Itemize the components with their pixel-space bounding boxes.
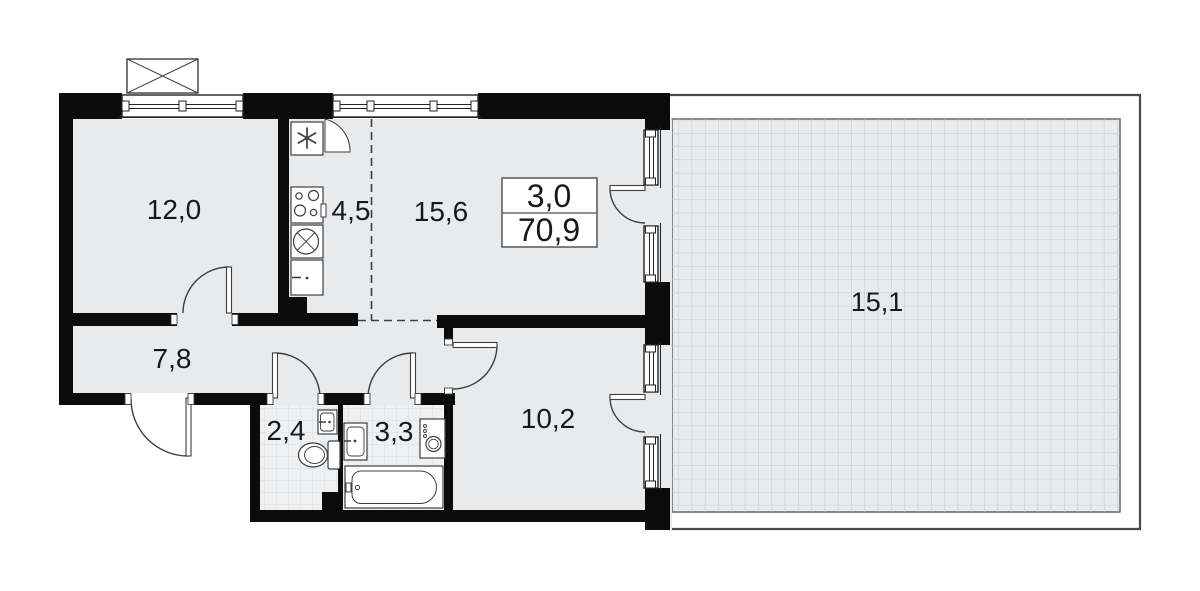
wall-top-mid — [243, 93, 333, 119]
summary-rooms-count: 3,0 — [527, 178, 571, 214]
wall-wc-notch — [322, 492, 343, 510]
wall-hall-top-a — [59, 313, 177, 326]
wall-wc-left — [250, 398, 260, 522]
balcony-cross-icon — [127, 59, 198, 93]
wall-hall-bottom-left — [59, 393, 131, 405]
wall-right-b — [645, 282, 670, 345]
window-living-1 — [644, 127, 661, 188]
door-leaf — [610, 186, 645, 191]
window-room1 — [118, 95, 247, 118]
floor-wc-doorway — [273, 393, 318, 405]
wall-hall-top-b — [232, 313, 358, 326]
wall-left — [59, 93, 73, 405]
window-living-2 — [644, 223, 661, 285]
wall-right-c — [645, 488, 670, 530]
stove-icon — [291, 187, 326, 223]
wall-room-kitchen — [278, 119, 289, 313]
terrace — [668, 95, 1140, 529]
floor-plan: 12,0 4,5 15,6 7,8 2,4 3,3 10,2 15,1 3,0 … — [0, 0, 1200, 591]
label-kitchen-area: 4,5 — [332, 195, 371, 226]
label-terrace-area: 15,1 — [851, 287, 904, 317]
door-leaf — [273, 353, 278, 398]
washbasin-icon — [344, 423, 367, 460]
label-bath-area: 3,3 — [375, 416, 414, 447]
label-hall-area: 7,8 — [153, 343, 192, 374]
label-bedroom-area: 10,2 — [521, 403, 576, 434]
door-leaf — [610, 395, 645, 400]
label-wc-area: 2,4 — [267, 415, 306, 446]
wall-bottom — [250, 510, 670, 522]
label-room1-area: 12,0 — [147, 194, 202, 225]
door-entrance — [131, 398, 191, 456]
bathtub-icon — [345, 466, 443, 508]
floor-plan-page: 12,0 4,5 15,6 7,8 2,4 3,3 10,2 15,1 3,0 … — [0, 0, 1200, 591]
wall-kitchen-stub — [289, 297, 307, 313]
sink-cross-icon — [291, 225, 323, 258]
door-swing-arc — [131, 399, 188, 456]
wall-right-a — [645, 93, 670, 130]
washbasin-icon — [318, 410, 337, 434]
window-kitchen-living — [329, 95, 482, 118]
door-leaf — [453, 343, 497, 348]
summary-box: 3,0 70,9 — [502, 178, 597, 248]
washing-machine-icon — [420, 419, 445, 458]
wall-top-right — [478, 93, 670, 119]
summary-total-area: 70,9 — [518, 212, 580, 248]
door-leaf — [411, 353, 416, 398]
window-bedroom-1 — [644, 342, 661, 395]
door-leaf — [227, 267, 232, 313]
wall-living-bedroom — [437, 315, 645, 328]
floor-bath-doorway — [370, 393, 415, 405]
door-leaf — [186, 398, 191, 456]
wall-bath-top-b — [318, 393, 370, 405]
wall-hall-bottom-right — [188, 393, 260, 405]
label-living-area: 15,6 — [414, 196, 469, 227]
kitchen-cabinet — [291, 260, 323, 295]
window-bedroom-2 — [644, 434, 661, 491]
